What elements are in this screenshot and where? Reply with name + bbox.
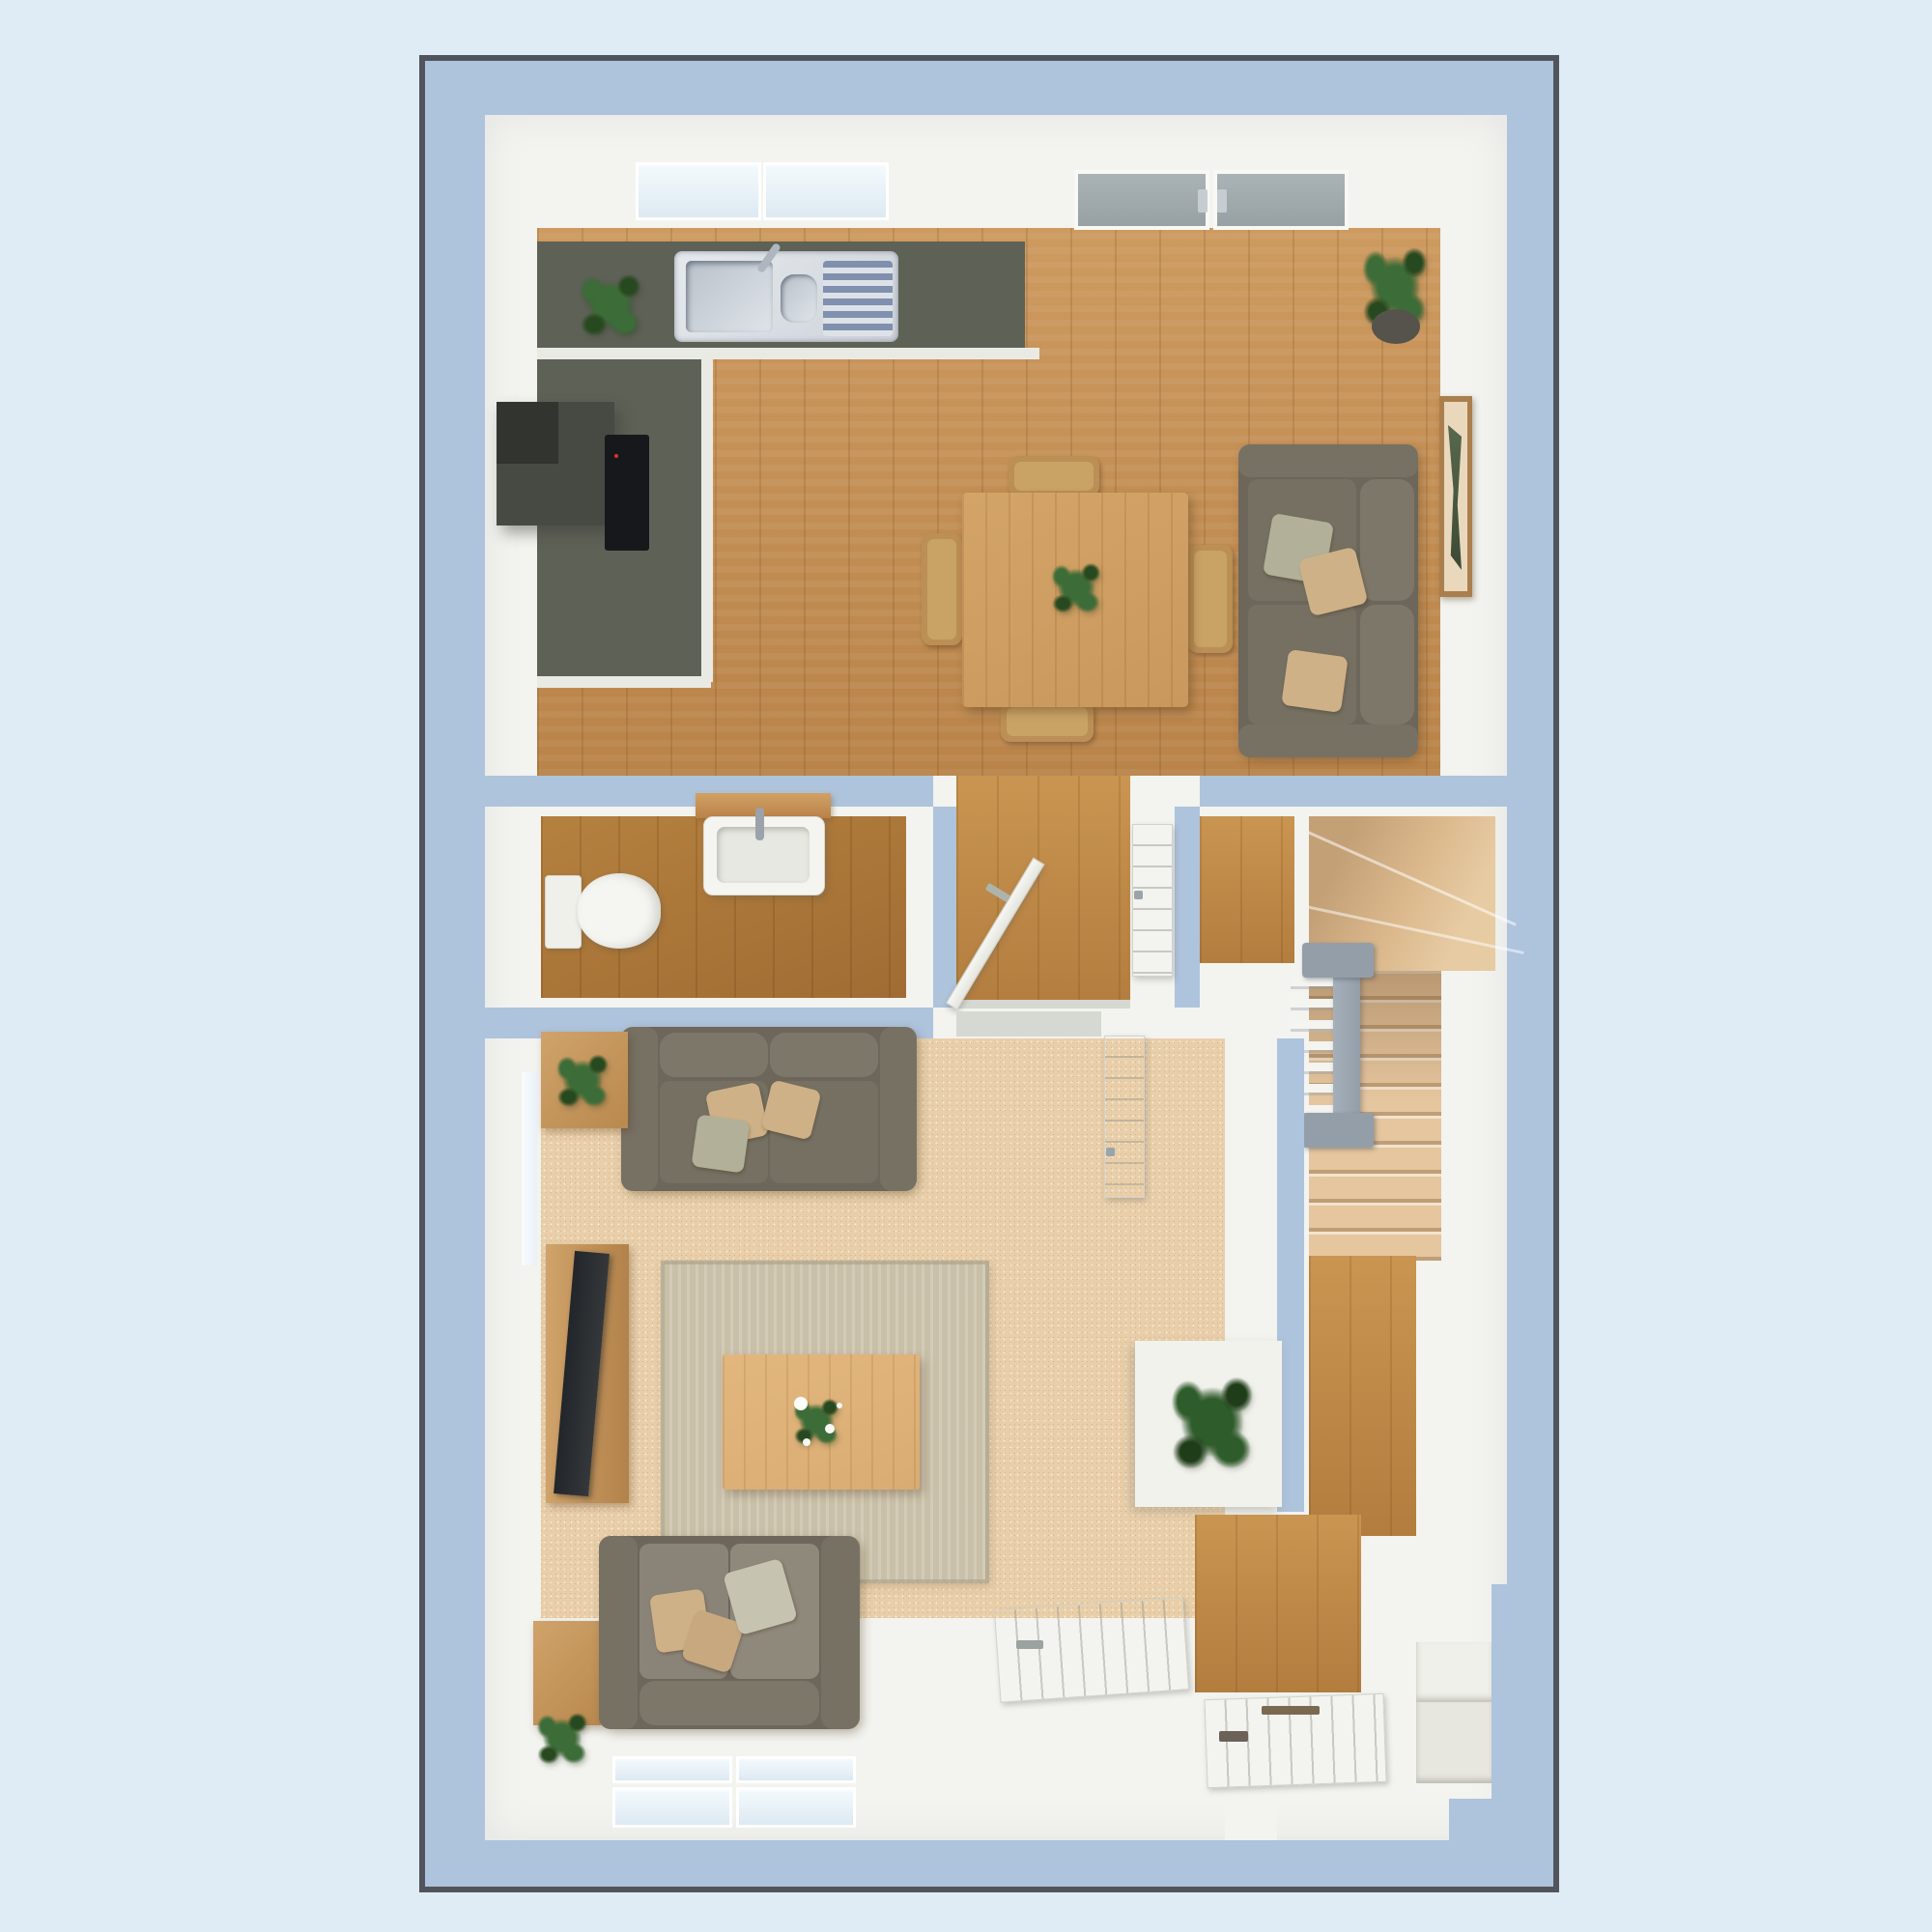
living-open-door-to-hall — [994, 1597, 1189, 1702]
living-sofa-bottom-arm-right — [821, 1536, 860, 1729]
living-hall-door-handle — [1016, 1640, 1043, 1649]
passage-door-handle — [1134, 891, 1143, 899]
bay-window-pane-4 — [736, 1787, 856, 1828]
dining-sofa-arm-top — [1238, 444, 1418, 477]
passage-open-door-against-wall — [1132, 824, 1173, 977]
floor-plant-bottom-left — [525, 1700, 600, 1776]
wall-passage-right — [1175, 807, 1200, 1008]
hob-indicator-light — [614, 454, 618, 458]
dining-chair-left — [922, 533, 962, 645]
hall-floor-lower — [1195, 1515, 1361, 1692]
counter-plant — [565, 259, 656, 350]
dining-sofa — [1238, 444, 1418, 757]
dining-chair-top-seat — [1014, 462, 1094, 491]
front-door-letterbox — [1262, 1706, 1320, 1715]
under-stair-plant — [1151, 1354, 1273, 1490]
extractor-hood-duct — [497, 402, 558, 464]
dining-chair-right-seat — [1194, 551, 1227, 647]
living-sofa-top-back-1 — [660, 1033, 768, 1077]
dining-sofa-pillow-tan-2 — [1281, 649, 1348, 713]
toilet-bowl — [578, 873, 661, 949]
living-doorway-threshold — [956, 1011, 1101, 1037]
kitchen-window-pane-left — [636, 162, 761, 220]
living-sofa-top — [621, 1027, 917, 1191]
wc-right-wall-face — [906, 807, 933, 1008]
wall-wc-right — [933, 807, 956, 1008]
sink-bowl-small — [781, 274, 817, 323]
passage-floor — [956, 776, 1130, 1008]
bay-window-pane-3 — [612, 1787, 732, 1828]
stair-handrail — [1333, 974, 1360, 1121]
living-sofa-bottom-back — [639, 1681, 819, 1725]
side-table-plant-top — [544, 1041, 621, 1119]
basin-tap — [755, 808, 764, 840]
plan-notch-right — [1492, 1584, 1507, 1840]
entrance-step-1 — [1416, 1642, 1493, 1702]
living-left-window — [522, 1072, 537, 1265]
french-door-right — [1213, 170, 1349, 230]
dining-sofa-back-cushion-1 — [1360, 479, 1414, 601]
living-sofa-top-pillow-sage — [692, 1115, 751, 1174]
living-sofa-top-back-2 — [770, 1033, 878, 1077]
french-door-left — [1074, 170, 1209, 230]
toilet-cistern — [545, 875, 582, 949]
dining-chair-top — [1009, 456, 1099, 497]
bay-window-pane-2 — [736, 1756, 856, 1783]
newel-post-top — [1302, 943, 1374, 978]
dining-sofa-back-cushion-2 — [1360, 605, 1414, 724]
dining-corner-plant-pot — [1372, 309, 1420, 344]
counter-edge-end — [537, 676, 711, 688]
living-sofa-bottom — [599, 1536, 860, 1729]
counter-edge-right — [701, 348, 713, 682]
french-door-handle-left — [1198, 189, 1207, 213]
dining-chair-bottom-seat — [1007, 707, 1088, 736]
wall-stairhall-top — [1200, 776, 1507, 807]
living-open-door-to-passage — [1104, 1036, 1145, 1198]
sink-drainer — [823, 261, 893, 336]
induction-hob — [605, 435, 649, 551]
dining-chair-bottom — [1001, 701, 1094, 742]
plan-notch-bottom — [1449, 1799, 1492, 1840]
dining-sofa-arm-bottom — [1238, 724, 1418, 757]
coffee-table-flowers — [794, 1397, 808, 1410]
coffee-table-plant — [782, 1387, 850, 1455]
newel-post-bottom — [1302, 1113, 1374, 1148]
dining-table-plant — [1039, 551, 1113, 624]
living-sofa-bottom-arm-left — [599, 1536, 638, 1729]
floorplan-canvas — [0, 0, 1932, 1932]
wall-art-frame — [1439, 396, 1472, 597]
entrance-step-2 — [1416, 1702, 1493, 1783]
bay-window-pane-1 — [612, 1756, 732, 1783]
french-door-handle-right — [1217, 189, 1227, 213]
living-sofa-top-arm-right — [880, 1027, 917, 1191]
hall-floor-upper — [1309, 1256, 1416, 1536]
front-door-handle — [1219, 1731, 1248, 1742]
kitchen-window-pane-right — [763, 162, 889, 220]
passage-threshold — [956, 1000, 1130, 1009]
dining-sofa-pillow-tan-1 — [1298, 547, 1369, 617]
dining-chair-right — [1188, 545, 1233, 653]
living-passage-door-handle — [1106, 1148, 1115, 1156]
dining-chair-left-seat — [927, 539, 956, 639]
